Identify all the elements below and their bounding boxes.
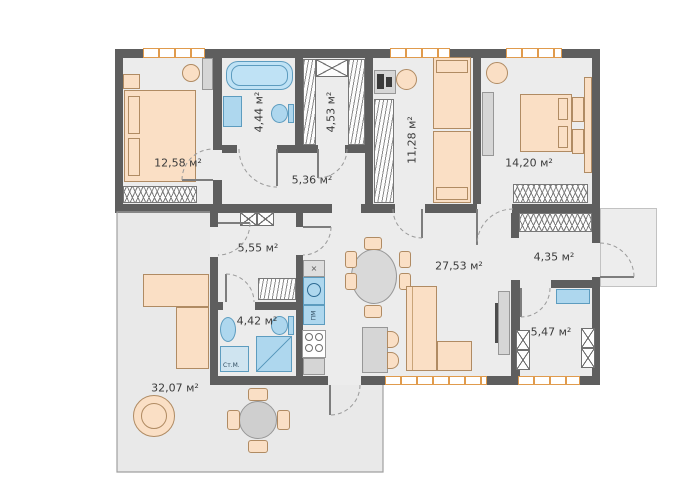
kitchen-sink-bowl xyxy=(307,283,321,297)
dining-chair xyxy=(345,251,357,268)
room-label-bathroom-2: 4,42 м² xyxy=(237,315,278,328)
pillow xyxy=(128,138,140,176)
headboard-panel xyxy=(584,77,592,173)
dining-chair xyxy=(364,305,382,318)
toilet-tank xyxy=(288,104,294,123)
wall xyxy=(210,302,223,310)
toilet xyxy=(271,104,288,123)
wardrobe-hatched xyxy=(374,99,394,203)
room-label-terrace: 32,07 м² xyxy=(151,382,199,395)
tv-icon xyxy=(495,303,498,343)
burner xyxy=(305,333,313,341)
desk-chair xyxy=(396,69,417,90)
terrace-chair xyxy=(227,410,240,430)
nightstand xyxy=(123,74,140,89)
pillow xyxy=(558,126,568,148)
wall xyxy=(361,204,395,213)
pillow xyxy=(436,60,468,73)
wall xyxy=(277,145,318,153)
tv-stand xyxy=(498,291,510,355)
sofa-arm-horizontal xyxy=(437,341,472,371)
wall xyxy=(210,376,328,385)
office-desk xyxy=(556,289,590,304)
kitchen-counter xyxy=(303,358,325,375)
room-label-entry-hall: 4,35 м² xyxy=(534,251,575,264)
shower xyxy=(256,336,292,372)
wardrobe-hatched xyxy=(123,186,197,203)
shelving-hatched xyxy=(303,59,316,145)
wall xyxy=(365,58,373,204)
terrace-sofa-top xyxy=(143,274,209,307)
sofa-back-line xyxy=(412,287,413,370)
wall xyxy=(210,257,218,376)
wall xyxy=(115,49,123,212)
wall xyxy=(210,213,218,227)
dining-chair xyxy=(345,273,357,290)
room-label-bedroom-2: 14,20 м² xyxy=(505,157,553,170)
wall xyxy=(296,213,303,227)
wall xyxy=(551,280,600,288)
hood-label: × xyxy=(311,264,318,273)
toilet-tank xyxy=(288,316,294,335)
room-label-office: 5,47 м² xyxy=(531,326,572,339)
dressing-table xyxy=(202,58,213,90)
terrace-table xyxy=(239,401,277,439)
stool xyxy=(182,64,200,82)
sink xyxy=(220,317,236,342)
wall xyxy=(115,204,332,213)
terrace-chair xyxy=(248,440,268,453)
wall xyxy=(255,302,303,310)
papasan-inner xyxy=(141,403,167,429)
pillow xyxy=(436,187,468,200)
pillow xyxy=(558,98,568,120)
burner xyxy=(305,344,313,352)
dining-table xyxy=(351,249,397,304)
dining-chair xyxy=(364,237,382,250)
monitor-icon xyxy=(386,77,392,87)
entrance-porch xyxy=(600,208,657,287)
bathtub-inner xyxy=(231,65,288,86)
wall xyxy=(512,204,600,213)
wardrobe-hatched xyxy=(513,184,588,203)
cabinet-box xyxy=(516,330,530,370)
wall xyxy=(213,180,222,204)
room-label-hallway: 5,36 м² xyxy=(292,174,333,187)
window xyxy=(518,376,580,385)
shoe-rack-hatched xyxy=(258,278,296,300)
room-label-corridor: 5,55 м² xyxy=(238,242,279,255)
room-label-bathroom-1: 4,44 м² xyxy=(253,92,266,133)
room-label-bedroom-1: 12,58 м² xyxy=(154,157,202,170)
shelving-hatched xyxy=(348,59,365,145)
wardrobe-hatched xyxy=(519,213,592,232)
terrace-chair xyxy=(248,388,268,401)
room-label-kids-room: 11,28 м² xyxy=(406,116,419,164)
terrace-sofa-side xyxy=(176,307,209,369)
washing-machine-label: Ст.М. xyxy=(223,362,240,369)
window xyxy=(390,48,450,58)
dresser xyxy=(482,92,494,156)
wall xyxy=(213,58,222,150)
wall xyxy=(345,145,365,153)
nightstand xyxy=(572,97,584,122)
dishwasher-label: ПМ xyxy=(310,311,317,321)
nightstand xyxy=(572,129,584,154)
wall xyxy=(511,213,519,238)
cabinet-box xyxy=(581,328,595,368)
dining-chair xyxy=(399,251,411,268)
wall xyxy=(473,58,481,204)
pillow xyxy=(128,96,140,134)
hood-unit: × xyxy=(303,260,325,277)
wall xyxy=(222,145,237,153)
burner xyxy=(315,333,323,341)
sink xyxy=(223,96,242,127)
wall xyxy=(295,58,303,147)
window xyxy=(506,48,562,58)
room-label-wardrobe-room: 4,53 м² xyxy=(325,92,338,133)
wall xyxy=(425,204,477,213)
wardrobe-box xyxy=(316,59,348,77)
computer-icon xyxy=(377,74,384,89)
burner xyxy=(315,344,323,352)
wall xyxy=(592,49,600,243)
floor-plan: Ст.М. × ПМ 12,58 м² 4,44 м² 4,53 м² 5,36… xyxy=(0,0,682,502)
wardrobe-box xyxy=(240,212,274,226)
sofa-arm-vertical xyxy=(406,286,437,371)
window xyxy=(385,376,487,385)
terrace-chair xyxy=(277,410,290,430)
room-label-living-room: 27,53 м² xyxy=(435,260,483,273)
side-table xyxy=(362,327,388,373)
window xyxy=(143,48,205,58)
armchair xyxy=(486,62,508,84)
